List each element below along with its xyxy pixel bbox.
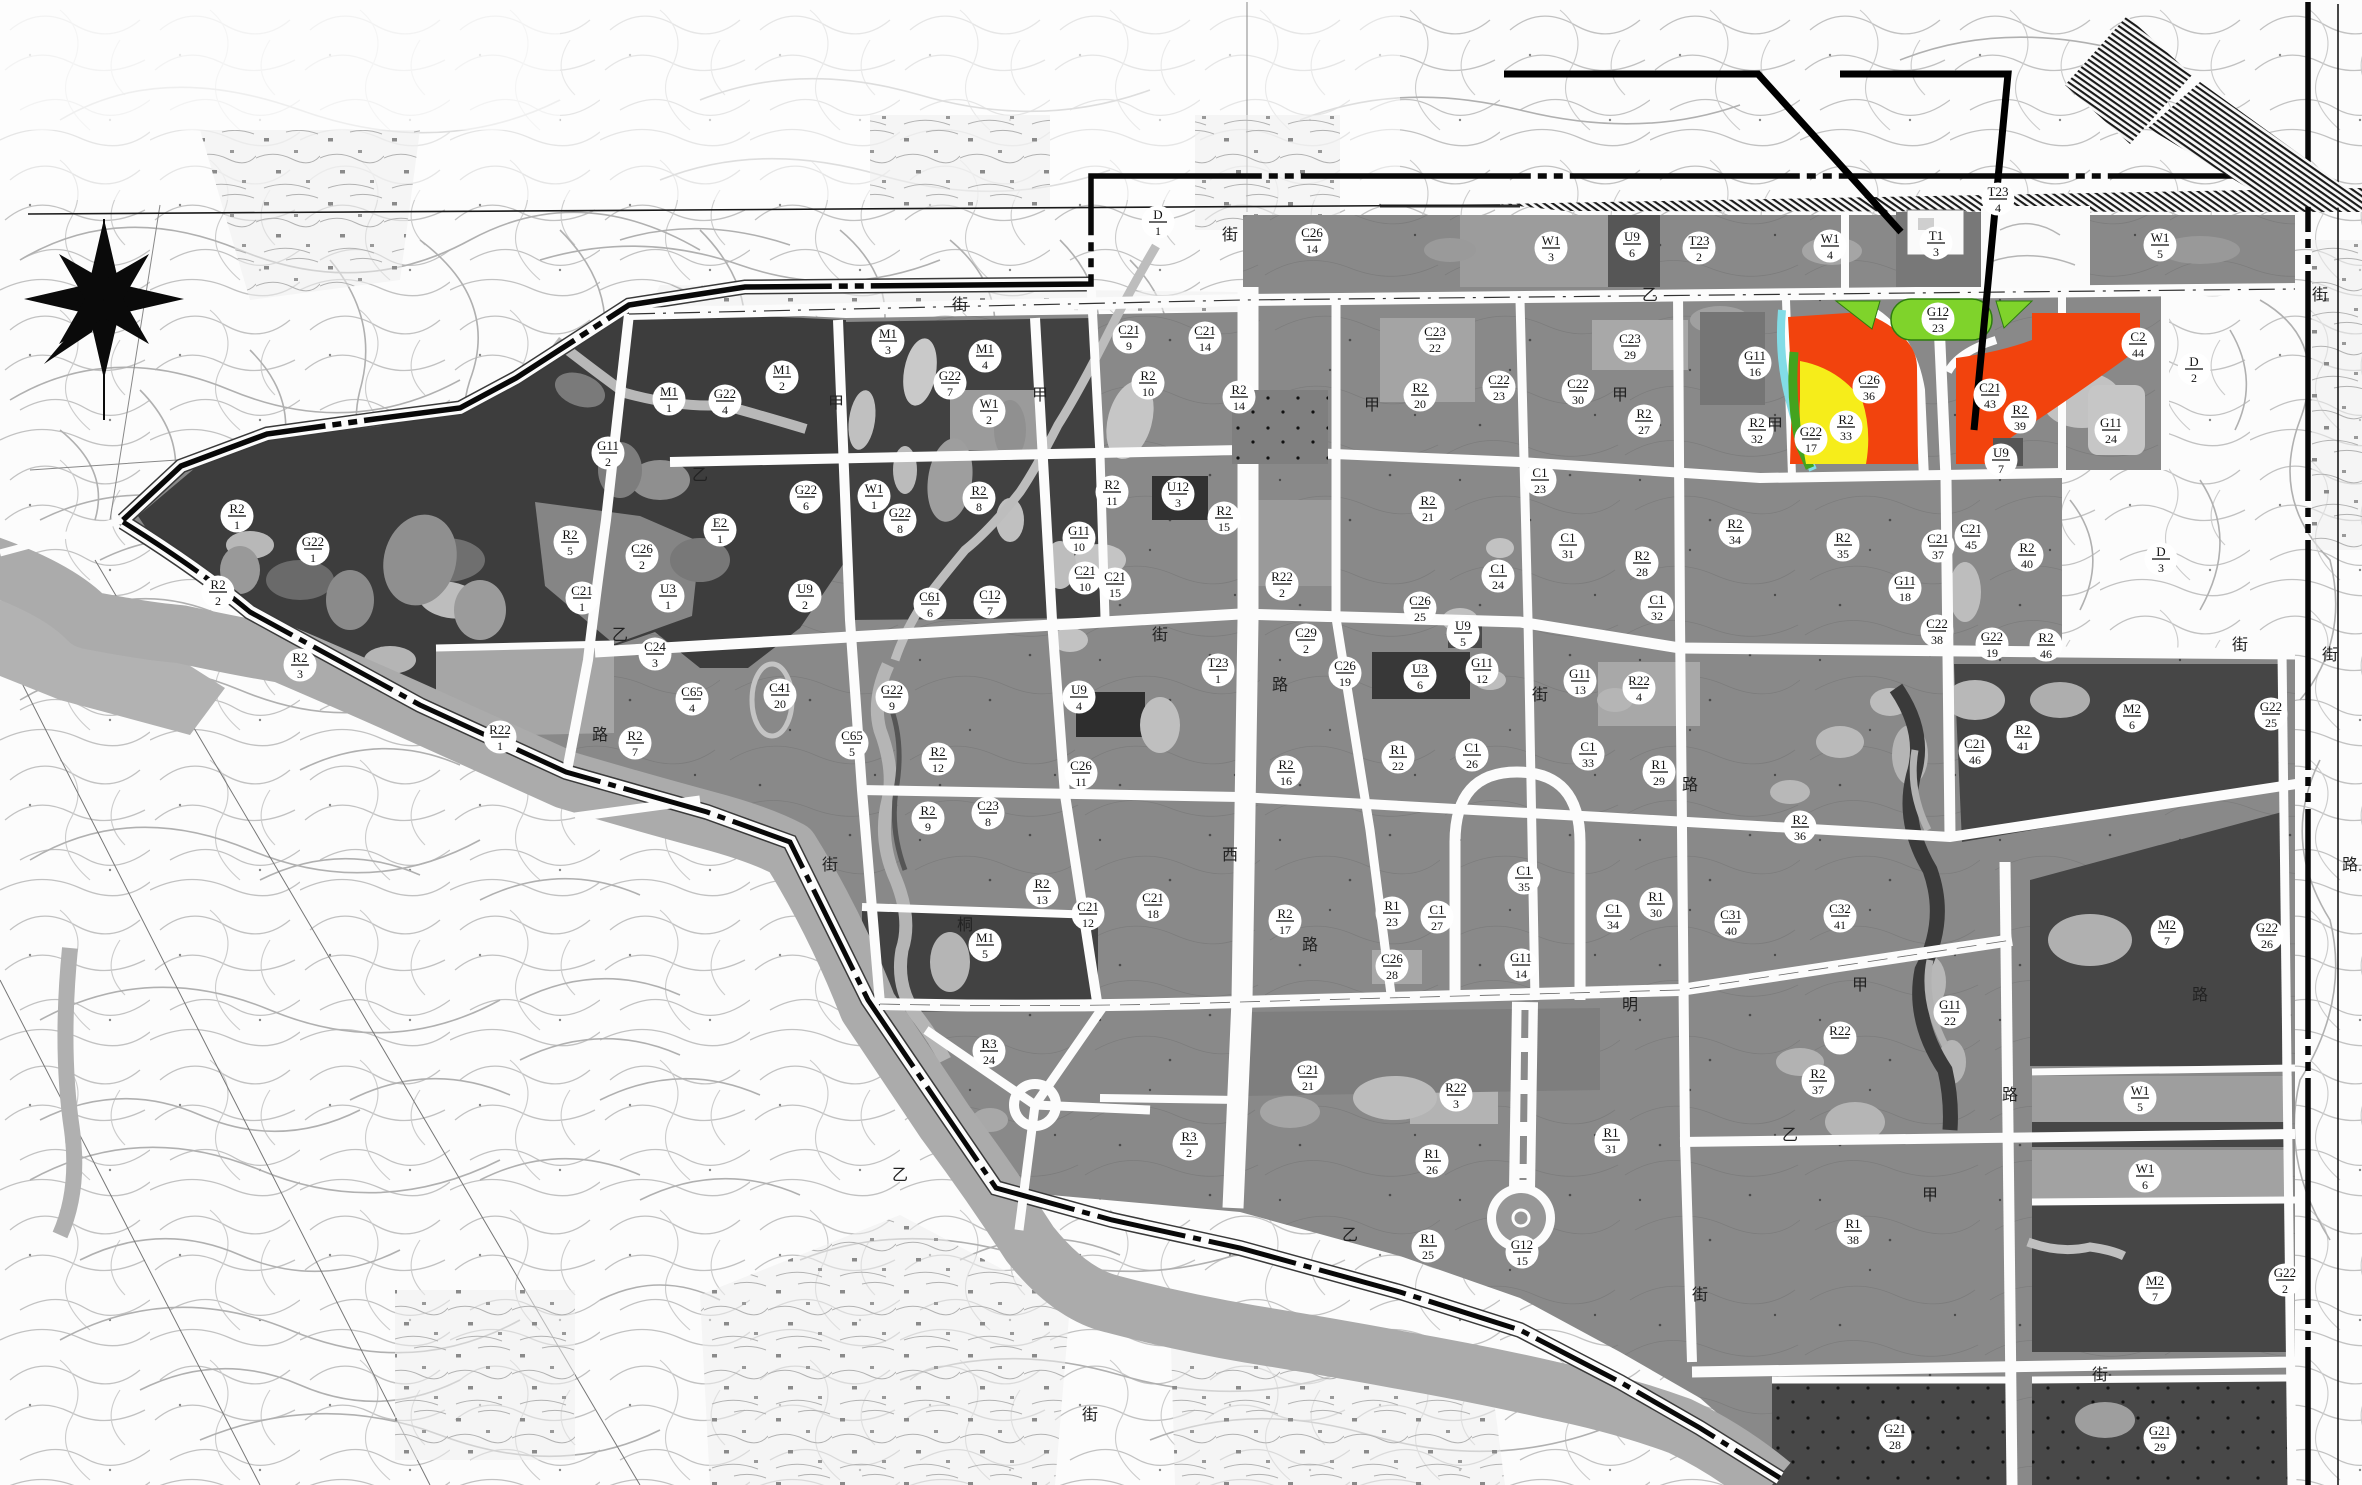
svg-text:C21: C21 xyxy=(1118,322,1140,337)
svg-text:C1: C1 xyxy=(1605,901,1620,916)
svg-text:R2: R2 xyxy=(1810,1066,1825,1081)
svg-text:U9: U9 xyxy=(1993,445,2009,460)
svg-text:23: 23 xyxy=(1493,389,1505,403)
svg-text:U3: U3 xyxy=(660,581,676,596)
svg-text:R1: R1 xyxy=(1651,757,1666,772)
svg-text:8: 8 xyxy=(976,500,982,514)
svg-text:22: 22 xyxy=(1944,1014,1956,1028)
svg-text:6: 6 xyxy=(1629,246,1635,260)
svg-text:37: 37 xyxy=(1932,548,1944,562)
svg-text:G11: G11 xyxy=(1939,997,1961,1012)
svg-text:4: 4 xyxy=(1827,248,1833,262)
svg-text:R1: R1 xyxy=(1390,742,1405,757)
svg-text:38: 38 xyxy=(1847,1233,1859,1247)
svg-text:G21: G21 xyxy=(1884,1421,1906,1436)
svg-text:31: 31 xyxy=(1605,1142,1617,1156)
svg-text:G22: G22 xyxy=(1800,424,1822,439)
svg-text:C1: C1 xyxy=(1532,465,1547,480)
svg-text:7: 7 xyxy=(2152,1290,2158,1304)
svg-text:C26: C26 xyxy=(1858,372,1880,387)
svg-text:R2: R2 xyxy=(920,803,935,818)
svg-text:C22: C22 xyxy=(1926,616,1948,631)
svg-text:19: 19 xyxy=(1339,675,1351,689)
svg-text:4: 4 xyxy=(1995,201,2001,215)
svg-text:1: 1 xyxy=(871,498,877,512)
svg-text:C24: C24 xyxy=(644,639,666,654)
svg-text:25: 25 xyxy=(1414,610,1426,624)
svg-text:4: 4 xyxy=(722,403,728,417)
svg-text:街: 街 xyxy=(1152,626,1168,644)
svg-text:29: 29 xyxy=(1624,348,1636,362)
svg-text:43: 43 xyxy=(1984,397,1996,411)
svg-text:路: 路 xyxy=(1682,776,1698,794)
svg-text:1: 1 xyxy=(1155,224,1161,238)
svg-text:7: 7 xyxy=(987,604,993,618)
svg-text:3: 3 xyxy=(1175,496,1181,510)
svg-text:W1: W1 xyxy=(2136,1161,2155,1176)
svg-text:3: 3 xyxy=(297,667,303,681)
svg-text:C2: C2 xyxy=(2130,329,2145,344)
svg-text:C1: C1 xyxy=(1516,863,1531,878)
svg-text:29: 29 xyxy=(2154,1440,2166,1454)
svg-text:甲: 甲 xyxy=(1852,977,1868,994)
svg-text:街: 街 xyxy=(822,856,838,874)
svg-text:5: 5 xyxy=(982,947,988,961)
svg-text:R2: R2 xyxy=(1749,415,1764,430)
svg-text:5: 5 xyxy=(1460,635,1466,649)
svg-text:R2: R2 xyxy=(229,501,244,516)
svg-text:12: 12 xyxy=(1476,672,1488,686)
svg-text:街: 街 xyxy=(2312,286,2328,304)
svg-text:2: 2 xyxy=(1186,1146,1192,1160)
svg-text:C21: C21 xyxy=(1104,569,1126,584)
svg-text:R2: R2 xyxy=(1104,477,1119,492)
svg-text:T23: T23 xyxy=(1208,655,1229,670)
svg-text:5: 5 xyxy=(567,544,573,558)
svg-text:3: 3 xyxy=(2158,561,2164,575)
svg-text:14: 14 xyxy=(1515,967,1527,981)
svg-text:27: 27 xyxy=(1638,423,1650,437)
svg-text:5: 5 xyxy=(849,745,855,759)
svg-text:46: 46 xyxy=(2040,647,2052,661)
svg-text:2: 2 xyxy=(2282,1282,2288,1296)
svg-text:W1: W1 xyxy=(2151,230,2170,245)
svg-text:U9: U9 xyxy=(1455,618,1471,633)
svg-text:G12: G12 xyxy=(1927,304,1949,319)
svg-text:街: 街 xyxy=(1532,686,1548,704)
svg-text:15: 15 xyxy=(1516,1254,1528,1268)
svg-text:C1: C1 xyxy=(1649,592,1664,607)
svg-text:R2: R2 xyxy=(2038,630,2053,645)
svg-text:M1: M1 xyxy=(976,930,994,945)
svg-text:22: 22 xyxy=(1392,759,1404,773)
svg-text:街: 街 xyxy=(1082,1406,1098,1424)
svg-text:30: 30 xyxy=(1650,906,1662,920)
svg-text:G11: G11 xyxy=(1744,348,1766,363)
svg-text:C26: C26 xyxy=(631,541,653,556)
svg-text:3: 3 xyxy=(652,656,658,670)
svg-text:C26: C26 xyxy=(1334,658,1356,673)
svg-text:40: 40 xyxy=(2021,557,2033,571)
svg-text:33: 33 xyxy=(1582,756,1594,770)
svg-text:乙: 乙 xyxy=(1642,287,1658,304)
svg-text:24: 24 xyxy=(983,1053,995,1067)
svg-text:1: 1 xyxy=(666,401,672,415)
svg-text:6: 6 xyxy=(803,499,809,513)
svg-text:R1: R1 xyxy=(1648,889,1663,904)
svg-text:8: 8 xyxy=(985,815,991,829)
svg-text:U9: U9 xyxy=(1624,229,1640,244)
svg-text:18: 18 xyxy=(1899,590,1911,604)
svg-text:C1: C1 xyxy=(1560,530,1575,545)
svg-text:M1: M1 xyxy=(773,362,791,377)
svg-text:C23: C23 xyxy=(1619,331,1641,346)
svg-text:路: 路 xyxy=(1302,936,1318,954)
svg-text:C1: C1 xyxy=(1490,561,1505,576)
svg-text:9: 9 xyxy=(889,699,895,713)
svg-text:R22: R22 xyxy=(1628,673,1650,688)
svg-text:R2: R2 xyxy=(1034,876,1049,891)
svg-text:G22: G22 xyxy=(2256,920,2278,935)
svg-text:U12: U12 xyxy=(1167,479,1189,494)
svg-text:41: 41 xyxy=(2017,739,2029,753)
svg-text:7: 7 xyxy=(947,385,953,399)
svg-text:G22: G22 xyxy=(302,534,324,549)
svg-text:20: 20 xyxy=(774,697,786,711)
svg-text:C26: C26 xyxy=(1381,951,1403,966)
svg-text:10: 10 xyxy=(1142,385,1154,399)
svg-text:C65: C65 xyxy=(841,728,863,743)
svg-text:25: 25 xyxy=(1422,1248,1434,1262)
svg-text:3: 3 xyxy=(1933,245,1939,259)
svg-text:26: 26 xyxy=(2261,937,2273,951)
svg-text:D: D xyxy=(2156,544,2165,559)
svg-text:23: 23 xyxy=(1534,482,1546,496)
svg-text:27: 27 xyxy=(1431,919,1443,933)
svg-text:U3: U3 xyxy=(1412,661,1428,676)
svg-text:W1: W1 xyxy=(1821,231,1840,246)
svg-text:C12: C12 xyxy=(979,587,1001,602)
svg-text:C61: C61 xyxy=(919,589,941,604)
svg-text:M1: M1 xyxy=(976,341,994,356)
svg-text:1: 1 xyxy=(310,551,316,565)
svg-text:11: 11 xyxy=(1106,494,1118,508)
svg-text:C23: C23 xyxy=(1424,324,1446,339)
svg-text:C65: C65 xyxy=(681,684,703,699)
svg-text:2: 2 xyxy=(1303,642,1309,656)
svg-text:3: 3 xyxy=(1548,250,1554,264)
svg-text:1: 1 xyxy=(717,532,723,546)
svg-text:R22: R22 xyxy=(1271,569,1293,584)
svg-text:14: 14 xyxy=(1306,242,1318,256)
svg-text:35: 35 xyxy=(1837,547,1849,561)
svg-text:G12: G12 xyxy=(1511,1237,1533,1252)
svg-text:R2: R2 xyxy=(1727,516,1742,531)
svg-text:W1: W1 xyxy=(980,396,999,411)
svg-text:G22: G22 xyxy=(889,505,911,520)
svg-text:C21: C21 xyxy=(1074,563,1096,578)
svg-text:M2: M2 xyxy=(2146,1273,2164,1288)
svg-text:C21: C21 xyxy=(1297,1062,1319,1077)
svg-text:街: 街 xyxy=(1222,226,1238,244)
svg-text:路: 路 xyxy=(1272,676,1288,694)
svg-text:R2: R2 xyxy=(1412,380,1427,395)
svg-text:R2: R2 xyxy=(1835,530,1850,545)
svg-text:甲: 甲 xyxy=(1767,417,1783,434)
svg-text:5: 5 xyxy=(2137,1100,2143,1114)
svg-text:2: 2 xyxy=(215,594,221,608)
svg-text:街: 街 xyxy=(2322,646,2338,664)
svg-text:明: 明 xyxy=(1622,997,1638,1014)
svg-text:R2: R2 xyxy=(1838,412,1853,427)
svg-text:西: 西 xyxy=(1222,847,1238,864)
svg-text:8: 8 xyxy=(897,522,903,536)
svg-text:R1: R1 xyxy=(1424,1146,1439,1161)
svg-text:乙: 乙 xyxy=(692,467,708,484)
svg-text:5: 5 xyxy=(2157,247,2163,261)
svg-text:1: 1 xyxy=(497,739,503,753)
svg-text:R3: R3 xyxy=(981,1036,996,1051)
svg-text:23: 23 xyxy=(1386,915,1398,929)
svg-text:4: 4 xyxy=(1636,690,1642,704)
svg-text:9: 9 xyxy=(925,820,931,834)
svg-text:3: 3 xyxy=(1453,1097,1459,1111)
svg-text:甲: 甲 xyxy=(1032,387,1048,404)
svg-text:M2: M2 xyxy=(2158,917,2176,932)
svg-text:22: 22 xyxy=(1429,341,1441,355)
svg-text:20: 20 xyxy=(1414,397,1426,411)
svg-text:7: 7 xyxy=(1998,462,2004,476)
svg-text:35: 35 xyxy=(1518,880,1530,894)
svg-text:2: 2 xyxy=(639,558,645,572)
svg-text:M1: M1 xyxy=(660,384,678,399)
svg-text:37: 37 xyxy=(1812,1083,1824,1097)
svg-text:C22: C22 xyxy=(1567,376,1589,391)
svg-text:15: 15 xyxy=(1218,520,1230,534)
svg-text:C29: C29 xyxy=(1295,625,1317,640)
svg-text:36: 36 xyxy=(1863,389,1875,403)
svg-text:R2: R2 xyxy=(1792,812,1807,827)
svg-text:街: 街 xyxy=(2092,1366,2108,1384)
svg-text:乙: 乙 xyxy=(1782,1127,1798,1144)
svg-text:R2: R2 xyxy=(1277,906,1292,921)
svg-text:2: 2 xyxy=(2191,371,2197,385)
svg-text:街: 街 xyxy=(952,296,968,314)
svg-text:1: 1 xyxy=(665,598,671,612)
svg-text:6: 6 xyxy=(1417,678,1423,692)
svg-text:28: 28 xyxy=(1889,1438,1901,1452)
svg-text:26: 26 xyxy=(1426,1163,1438,1177)
svg-text:14: 14 xyxy=(1199,340,1211,354)
svg-text:16: 16 xyxy=(1280,774,1292,788)
svg-text:39: 39 xyxy=(2014,419,2026,433)
svg-text:路: 路 xyxy=(2192,986,2208,1004)
svg-text:T23: T23 xyxy=(1988,184,2009,199)
svg-text:甲: 甲 xyxy=(828,395,844,412)
svg-text:R1: R1 xyxy=(1420,1231,1435,1246)
svg-text:17: 17 xyxy=(1279,923,1291,937)
svg-text:G11: G11 xyxy=(1894,573,1916,588)
svg-text:29: 29 xyxy=(1653,774,1665,788)
svg-text:21: 21 xyxy=(1302,1079,1314,1093)
svg-text:R2: R2 xyxy=(292,650,307,665)
svg-text:R2: R2 xyxy=(562,527,577,542)
svg-text:33: 33 xyxy=(1840,429,1852,443)
svg-text:24: 24 xyxy=(1492,578,1504,592)
svg-text:G11: G11 xyxy=(1068,523,1090,538)
svg-text:21: 21 xyxy=(1422,510,1434,524)
svg-text:11: 11 xyxy=(1075,775,1087,789)
svg-text:31: 31 xyxy=(1562,547,1574,561)
svg-text:7: 7 xyxy=(2164,934,2170,948)
svg-text:C21: C21 xyxy=(1927,531,1949,546)
svg-text:23: 23 xyxy=(1932,321,1944,335)
svg-text:R2: R2 xyxy=(2012,402,2027,417)
svg-text:G22: G22 xyxy=(1981,629,2003,644)
svg-text:R22: R22 xyxy=(489,722,511,737)
svg-text:7: 7 xyxy=(632,745,638,759)
svg-text:C21: C21 xyxy=(1960,521,1982,536)
svg-text:C32: C32 xyxy=(1829,901,1851,916)
svg-text:28: 28 xyxy=(1636,565,1648,579)
svg-text:W1: W1 xyxy=(2131,1083,2150,1098)
svg-text:E2: E2 xyxy=(713,515,727,530)
svg-text:32: 32 xyxy=(1651,609,1663,623)
svg-text:2: 2 xyxy=(605,455,611,469)
svg-text:C26: C26 xyxy=(1070,758,1092,773)
svg-text:46: 46 xyxy=(1969,753,1981,767)
svg-text:R22: R22 xyxy=(1829,1023,1851,1038)
svg-text:C23: C23 xyxy=(977,798,999,813)
svg-text:甲: 甲 xyxy=(1922,1187,1938,1204)
svg-text:C21: C21 xyxy=(1142,890,1164,905)
svg-text:34: 34 xyxy=(1607,918,1619,932)
svg-text:R2: R2 xyxy=(1420,493,1435,508)
svg-text:街: 街 xyxy=(2232,636,2248,654)
svg-text:R1: R1 xyxy=(1845,1216,1860,1231)
svg-text:28: 28 xyxy=(1386,968,1398,982)
svg-text:T23: T23 xyxy=(1689,233,1710,248)
svg-text:41: 41 xyxy=(1834,918,1846,932)
svg-text:30: 30 xyxy=(1572,393,1584,407)
svg-text:45: 45 xyxy=(1965,538,1977,552)
svg-text:16: 16 xyxy=(1749,365,1761,379)
svg-text:C1: C1 xyxy=(1429,902,1444,917)
svg-text:44: 44 xyxy=(2132,346,2144,360)
svg-text:18: 18 xyxy=(1147,907,1159,921)
svg-text:14: 14 xyxy=(1233,399,1245,413)
svg-text:G22: G22 xyxy=(2260,699,2282,714)
svg-text:2: 2 xyxy=(986,413,992,427)
svg-text:19: 19 xyxy=(1986,646,1998,660)
svg-text:C26: C26 xyxy=(1301,225,1323,240)
svg-text:36: 36 xyxy=(1794,829,1806,843)
svg-text:1: 1 xyxy=(579,600,585,614)
svg-text:6: 6 xyxy=(2142,1178,2148,1192)
svg-text:R1: R1 xyxy=(1603,1125,1618,1140)
svg-text:G11: G11 xyxy=(1471,655,1493,670)
svg-text:34: 34 xyxy=(1729,533,1741,547)
svg-text:24: 24 xyxy=(2105,432,2117,446)
svg-text:D: D xyxy=(2189,354,2198,369)
svg-text:R2: R2 xyxy=(971,483,986,498)
svg-text:R2: R2 xyxy=(1216,503,1231,518)
svg-text:12: 12 xyxy=(932,761,944,775)
svg-text:D: D xyxy=(1153,207,1162,222)
svg-text:R1: R1 xyxy=(1384,898,1399,913)
svg-text:12: 12 xyxy=(1082,916,1094,930)
svg-text:C31: C31 xyxy=(1720,907,1742,922)
svg-text:C26: C26 xyxy=(1409,593,1431,608)
svg-text:15: 15 xyxy=(1109,586,1121,600)
svg-text:R2: R2 xyxy=(2015,722,2030,737)
svg-text:4: 4 xyxy=(1076,699,1082,713)
svg-text:W1: W1 xyxy=(865,481,884,496)
svg-text:G11: G11 xyxy=(2100,415,2122,430)
svg-text:C21: C21 xyxy=(571,583,593,598)
svg-text:M2: M2 xyxy=(2123,701,2141,716)
svg-text:32: 32 xyxy=(1751,432,1763,446)
svg-text:4: 4 xyxy=(982,358,988,372)
svg-text:2: 2 xyxy=(779,379,785,393)
svg-text:R2: R2 xyxy=(1636,406,1651,421)
svg-text:R2: R2 xyxy=(1634,548,1649,563)
svg-text:10: 10 xyxy=(1073,540,1085,554)
svg-text:G22: G22 xyxy=(714,386,736,401)
svg-text:R3: R3 xyxy=(1181,1129,1196,1144)
svg-text:乙: 乙 xyxy=(1342,1227,1358,1244)
svg-text:6: 6 xyxy=(927,606,933,620)
svg-text:C22: C22 xyxy=(1488,372,1510,387)
svg-text:9: 9 xyxy=(1126,339,1132,353)
svg-text:R2: R2 xyxy=(930,744,945,759)
svg-text:W1: W1 xyxy=(1542,233,1561,248)
svg-text:3: 3 xyxy=(885,343,891,357)
svg-text:街: 街 xyxy=(1692,1286,1708,1304)
svg-text:路: 路 xyxy=(2002,1086,2018,1104)
svg-text:G11: G11 xyxy=(1569,666,1591,681)
svg-text:C21: C21 xyxy=(1964,736,1986,751)
svg-text:乙: 乙 xyxy=(612,627,628,644)
svg-text:乙: 乙 xyxy=(892,1167,908,1184)
svg-text:17: 17 xyxy=(1805,441,1817,455)
svg-text:C21: C21 xyxy=(1194,323,1216,338)
svg-text:U9: U9 xyxy=(1071,682,1087,697)
svg-text:R2: R2 xyxy=(2019,540,2034,555)
svg-text:C1: C1 xyxy=(1464,740,1479,755)
svg-text:R2: R2 xyxy=(210,577,225,592)
svg-text:C21: C21 xyxy=(1077,899,1099,914)
svg-text:G11: G11 xyxy=(597,438,619,453)
svg-text:M1: M1 xyxy=(879,326,897,341)
svg-text:G22: G22 xyxy=(795,482,817,497)
svg-text:G22: G22 xyxy=(939,368,961,383)
svg-text:6: 6 xyxy=(2129,718,2135,732)
svg-text:R22: R22 xyxy=(1445,1080,1467,1095)
svg-text:1: 1 xyxy=(1215,672,1221,686)
svg-text:G22: G22 xyxy=(2274,1265,2296,1280)
svg-text:C21: C21 xyxy=(1979,380,2001,395)
svg-text:R2: R2 xyxy=(627,728,642,743)
svg-text:G11: G11 xyxy=(1510,950,1532,965)
svg-text:G22: G22 xyxy=(881,682,903,697)
svg-text:25: 25 xyxy=(2265,716,2277,730)
svg-text:2: 2 xyxy=(1279,586,1285,600)
svg-text:R2: R2 xyxy=(1278,757,1293,772)
svg-text:13: 13 xyxy=(1574,683,1586,697)
svg-text:路: 路 xyxy=(592,726,608,744)
svg-text:13: 13 xyxy=(1036,893,1048,907)
